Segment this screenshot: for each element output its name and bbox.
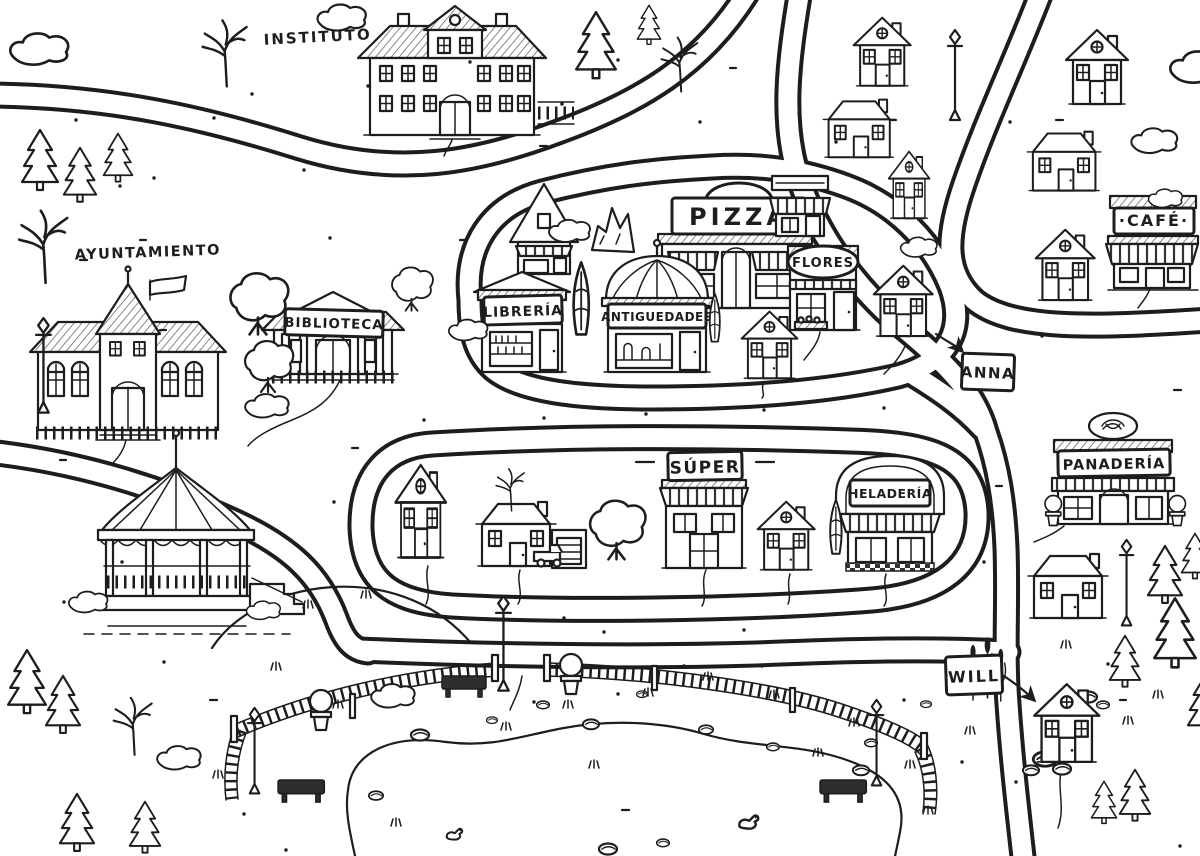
anna-tag: ANNA [960, 353, 1016, 391]
house-mid-block-1 [395, 465, 446, 558]
house-right-col-2 [1027, 132, 1101, 191]
house-mid-block-2 [476, 502, 586, 568]
anna-house [874, 266, 933, 336]
libreria-sign: LIBRERÍA [483, 295, 564, 325]
super-sign-label: SÚPER [669, 455, 740, 478]
libreria-sign-label: LIBRERÍA [483, 302, 563, 321]
antiguedades-sign-label: ANTIGUEDADES [601, 310, 713, 324]
heladeria-sign-label: HELADERÍA [848, 486, 932, 501]
cafe-shop: ·CAFÉ· [1106, 196, 1198, 290]
heladeria-sign: HELADERÍA [848, 480, 932, 506]
house-right-col-3 [1036, 230, 1095, 300]
town-map-illustration: BIBLIOTECA PIZZA [0, 0, 1200, 856]
anna-tag-label: ANNA [961, 363, 1016, 383]
rock-crag [592, 208, 634, 252]
house-right-col-1 [1066, 30, 1128, 104]
house-top-right-1 [854, 18, 911, 86]
ayuntamiento-building [30, 267, 226, 441]
panaderia-sign: PANADERÍA [1058, 449, 1170, 477]
biblioteca-sign: BIBLIOTECA [284, 309, 384, 338]
heladeria-shop: HELADERÍA [836, 456, 944, 571]
instituto-building [358, 6, 574, 139]
libreria-shop: LIBRERÍA [474, 272, 570, 372]
flores-sign-label: FLORES [792, 256, 854, 271]
awning-shop [770, 176, 830, 236]
panaderia-shop: PANADERÍA [1045, 413, 1186, 526]
super-shop: SÚPER [636, 451, 774, 568]
tall-house [889, 152, 930, 219]
ayuntamiento-label: AYUNTAMIENTO [74, 242, 221, 263]
instituto-label: INSTITUTO [263, 25, 372, 49]
house-mid-block-3 [758, 502, 815, 570]
will-tag: WILL [945, 655, 1002, 695]
flores-sign: FLORES [788, 246, 858, 278]
house-right-col-4 [1028, 554, 1108, 618]
pond [347, 723, 902, 856]
super-sign: SÚPER [668, 451, 742, 480]
house-top-right-2 [823, 100, 895, 158]
panaderia-sign-label: PANADERÍA [1063, 455, 1166, 474]
flores-shop: FLORES [786, 246, 860, 330]
antiguedades-sign: ANTIGUEDADES [601, 304, 713, 328]
cafe-sign: ·CAFÉ· [1114, 208, 1194, 234]
cafe-sign-label: ·CAFÉ· [1119, 211, 1189, 230]
will-tag-label: WILL [948, 666, 1001, 687]
biblioteca-sign-label: BIBLIOTECA [284, 315, 384, 334]
